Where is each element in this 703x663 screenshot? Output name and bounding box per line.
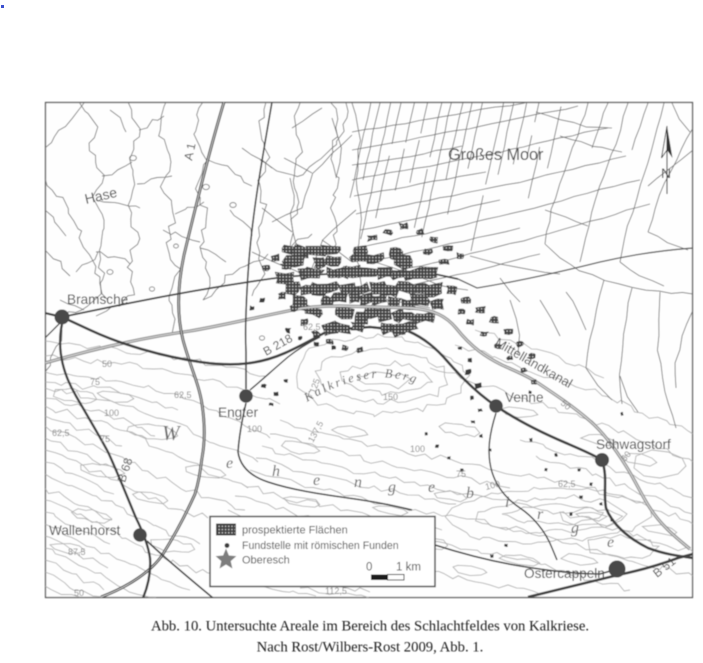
svg-text:e: e [428, 479, 435, 496]
svg-text:n: n [354, 474, 362, 491]
svg-text:62,5: 62,5 [558, 479, 576, 489]
svg-text:r: r [537, 506, 544, 523]
svg-text:62,5: 62,5 [52, 428, 70, 438]
svg-text:Schwagstorf: Schwagstorf [596, 437, 671, 452]
svg-text:75: 75 [456, 469, 466, 479]
svg-text:e: e [226, 455, 233, 472]
svg-text:Nach Rost/Wilbers-Rost 2009, A: Nach Rost/Wilbers-Rost 2009, Abb. 1. [257, 640, 484, 656]
svg-text:Venne: Venne [505, 390, 544, 405]
svg-text:75: 75 [100, 434, 110, 444]
svg-text:0: 0 [366, 562, 372, 574]
svg-text:62,5: 62,5 [303, 322, 321, 332]
svg-text:Bramsche: Bramsche [67, 292, 128, 307]
svg-text:50: 50 [102, 359, 112, 369]
svg-text:50: 50 [74, 588, 84, 598]
svg-text:Großes Moor: Großes Moor [448, 146, 544, 164]
svg-text:150: 150 [383, 392, 398, 402]
svg-text:1 km: 1 km [396, 562, 421, 574]
svg-text:87,5: 87,5 [68, 547, 86, 557]
svg-text:Oberesch: Oberesch [242, 555, 290, 567]
svg-text:Abb. 10. Untersuchte Areale im: Abb. 10. Untersuchte Areale im Bereich d… [151, 619, 589, 635]
svg-text:62,5: 62,5 [174, 390, 192, 400]
svg-text:i: i [505, 494, 509, 511]
svg-text:e: e [607, 534, 614, 551]
svg-text:h: h [272, 463, 280, 480]
svg-text:g: g [571, 520, 579, 537]
svg-text:prospektierte Flächen: prospektierte Flächen [242, 525, 348, 537]
svg-text:112,5: 112,5 [325, 586, 347, 596]
svg-text:g: g [388, 479, 396, 496]
svg-text:Ostercappeln: Ostercappeln [524, 566, 605, 581]
svg-text:100: 100 [410, 444, 425, 454]
svg-text:75: 75 [90, 377, 100, 387]
svg-text:Wallenhorst: Wallenhorst [49, 523, 120, 538]
svg-text:Engter: Engter [218, 405, 259, 420]
svg-text:e: e [313, 472, 320, 489]
svg-text:W: W [162, 421, 182, 445]
svg-text:b: b [466, 485, 474, 502]
svg-text:N: N [661, 165, 671, 181]
svg-text:Fundstelle mit römischen Funde: Fundstelle mit römischen Funden [242, 540, 399, 552]
svg-text:100: 100 [104, 408, 119, 418]
svg-text:100: 100 [247, 424, 262, 434]
